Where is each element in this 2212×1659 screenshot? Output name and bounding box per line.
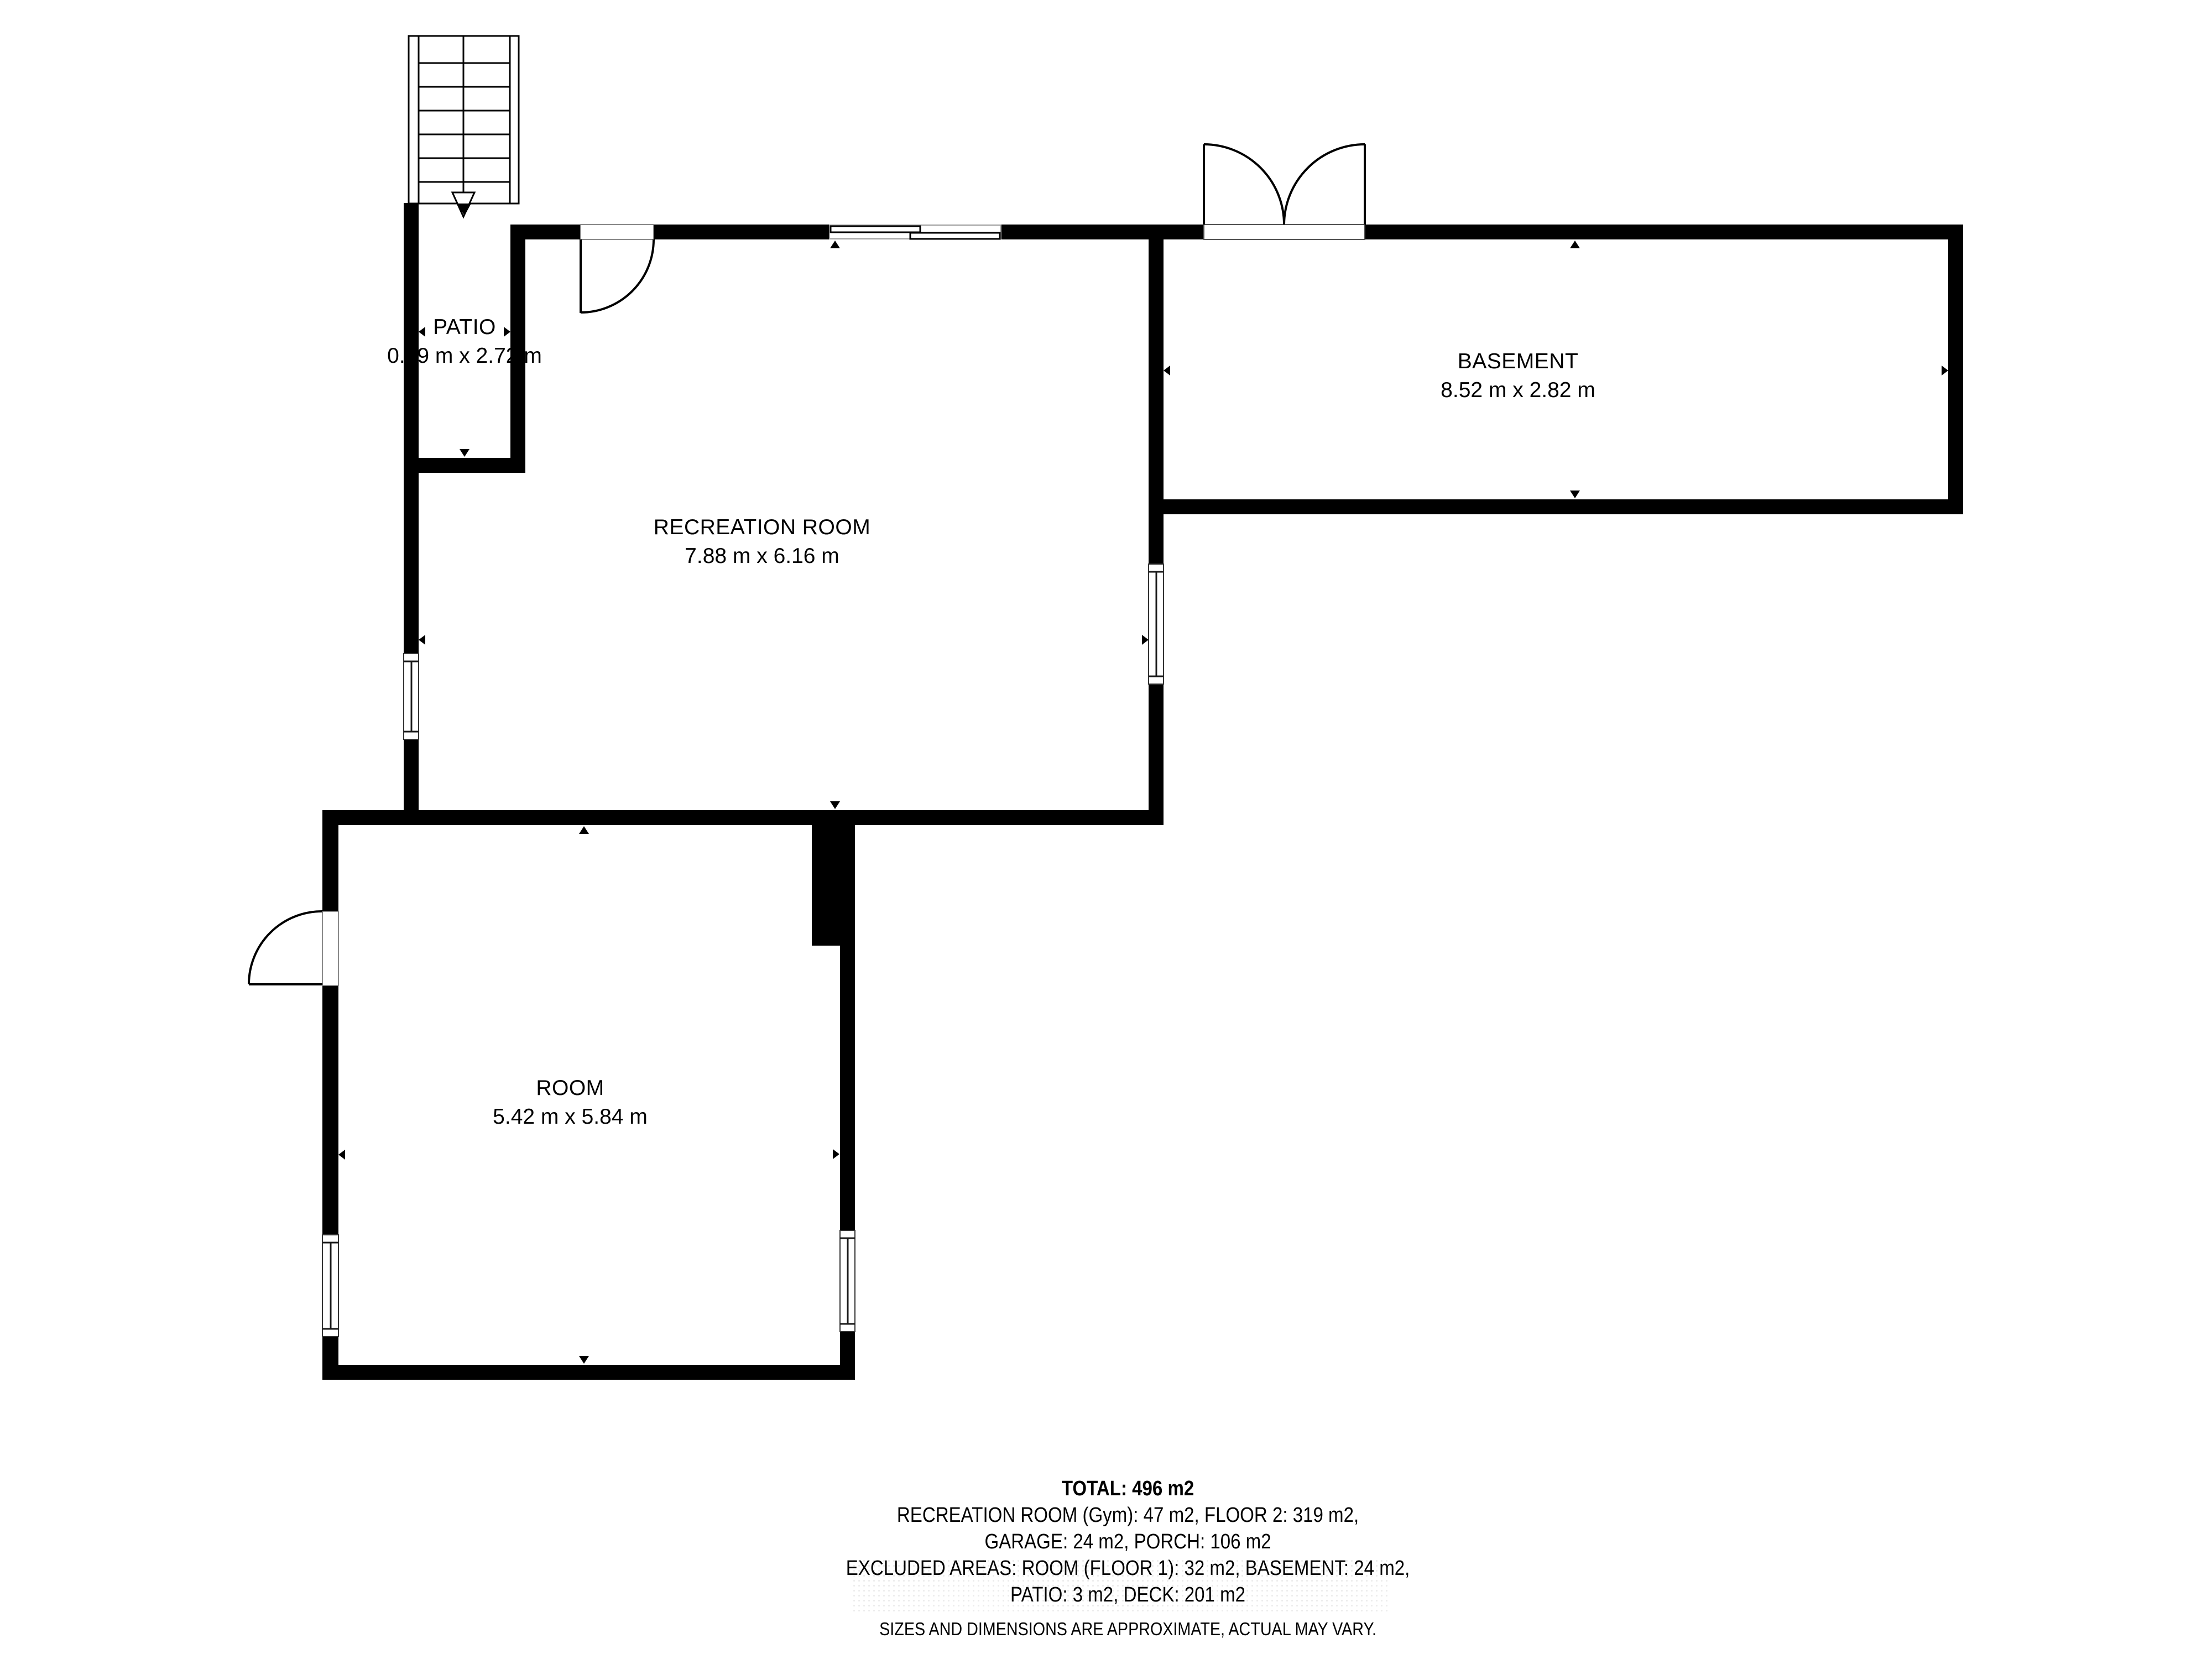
wall-patio-left xyxy=(404,203,419,473)
wall-rec-right-lower xyxy=(1149,684,1164,825)
sliding-window-rec-top xyxy=(830,225,1001,239)
dimension-arrow-right-icon xyxy=(833,1149,839,1159)
sliding-panel-right xyxy=(910,233,1000,239)
wall-room-top xyxy=(322,810,1164,825)
wall-room-left-seg2 xyxy=(322,985,338,1235)
dimension-arrow-left-icon xyxy=(338,1150,345,1160)
dimension-markers xyxy=(338,241,1948,1364)
dimension-arrow-down-icon xyxy=(579,1356,589,1364)
stairs xyxy=(409,36,519,217)
dimension-arrow-right-icon xyxy=(1942,366,1948,375)
dimension-arrow-right-icon xyxy=(504,327,510,337)
wall-top-seg4 xyxy=(1365,225,1963,239)
dimension-arrow-up-icon xyxy=(579,826,589,834)
dimension-arrow-up-icon xyxy=(830,241,840,248)
stair-direction-arrow-filled xyxy=(457,204,471,216)
dimension-arrow-right-icon xyxy=(1142,635,1149,645)
window-rec-right xyxy=(1149,564,1164,684)
wall-room-right-upper xyxy=(840,946,855,1230)
dimension-arrow-down-icon xyxy=(830,801,840,809)
wall-basement-bottom xyxy=(1149,499,1963,514)
double-door-basement xyxy=(1204,144,1365,239)
window-room-right xyxy=(840,1230,855,1332)
door-swing-arc-right xyxy=(1284,144,1365,225)
door-swing-arc xyxy=(249,911,322,984)
door-swing-arc xyxy=(581,239,654,312)
wall-patio-right xyxy=(510,225,525,473)
wall-rec-right-upper xyxy=(1149,225,1164,564)
door-opening xyxy=(322,911,338,985)
wall-room-left-seg1 xyxy=(322,825,338,911)
dimension-arrow-down-icon xyxy=(460,449,469,457)
wall-room-pillar xyxy=(812,825,855,946)
dimension-arrow-up-icon xyxy=(1570,241,1580,248)
dimension-arrow-left-icon xyxy=(419,327,425,337)
wall-top-seg2 xyxy=(654,225,830,239)
walls xyxy=(322,203,1963,1380)
door-recreation-top xyxy=(581,225,654,313)
dimension-arrow-down-icon xyxy=(1570,491,1580,498)
wall-top-seg3 xyxy=(1001,225,1204,239)
door-room-left xyxy=(249,911,338,985)
dimension-arrow-left-icon xyxy=(419,635,425,645)
door-swing-arc-left xyxy=(1204,144,1284,225)
window-rec-left xyxy=(404,654,419,739)
door-opening xyxy=(581,225,654,239)
wall-room-bottom xyxy=(322,1365,855,1380)
window-room-left xyxy=(322,1235,338,1337)
floor-plan-canvas: PATIO 0.99 m x 2.72 m RECREATION ROOM 7.… xyxy=(0,0,2212,1659)
sliding-panel-left xyxy=(831,226,920,232)
wall-basement-right xyxy=(1948,225,1963,514)
windows xyxy=(322,225,1164,1337)
dimension-arrow-left-icon xyxy=(1164,366,1170,375)
door-opening xyxy=(1204,225,1365,239)
wall-patio-bottom xyxy=(404,458,525,473)
wall-rec-left-upper xyxy=(404,473,419,654)
floor-plan-drawing xyxy=(0,0,2212,1659)
